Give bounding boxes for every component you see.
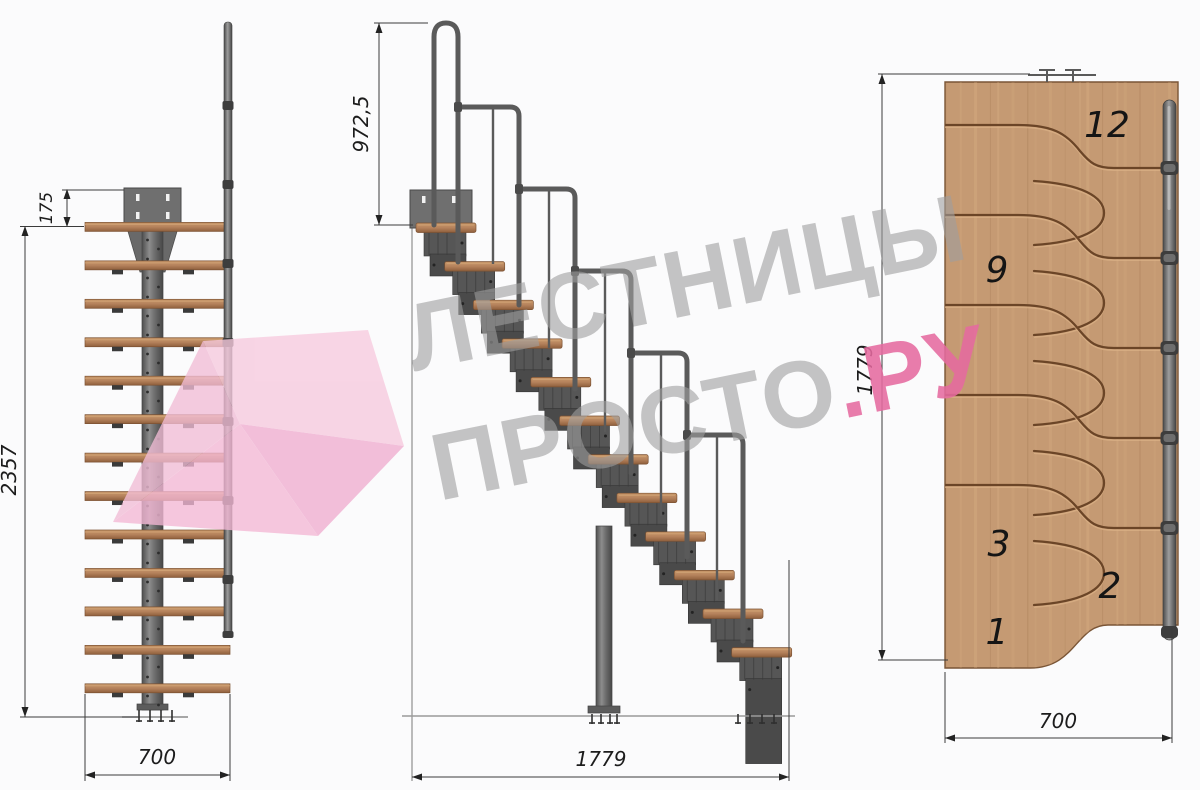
plan-step-2: 2 <box>1099 566 1122 607</box>
side-column-base <box>588 706 620 713</box>
plan-step-12: 12 <box>1084 105 1130 146</box>
watermark-text: ЛЕСТНИЦЫ ПРОСТО.РУ <box>396 174 1003 521</box>
front-dim-plate-label: 175 <box>37 192 57 224</box>
front-handrail-foot <box>223 631 234 638</box>
plan-handrail-loop <box>1168 106 1171 210</box>
side-mount-plate <box>410 190 472 228</box>
front-dim-height-label: 2357 <box>0 444 21 495</box>
front-dim-width-label: 700 <box>138 745 176 769</box>
drawing-canvas: 175 2357 700 <box>0 0 1200 790</box>
plan-step-1: 1 <box>986 612 1009 653</box>
front-anchor-bolts <box>136 710 175 722</box>
front-mount-plate <box>124 188 181 228</box>
front-column-base <box>137 704 168 710</box>
plan-top-bracket <box>1028 70 1096 82</box>
plan-step-3: 3 <box>988 524 1011 565</box>
side-dim-rail-label: 972,5 <box>349 95 373 152</box>
side-dim-length-label: 1779 <box>576 747 627 771</box>
plan-dim-width-label: 700 <box>1039 709 1077 733</box>
side-support-column <box>596 526 612 708</box>
front-dim-plate-height <box>62 189 124 227</box>
front-handrail-post <box>224 22 232 636</box>
staircase-technical-drawing: 175 2357 700 <box>0 0 1200 790</box>
plan-step-9: 9 <box>986 250 1009 291</box>
